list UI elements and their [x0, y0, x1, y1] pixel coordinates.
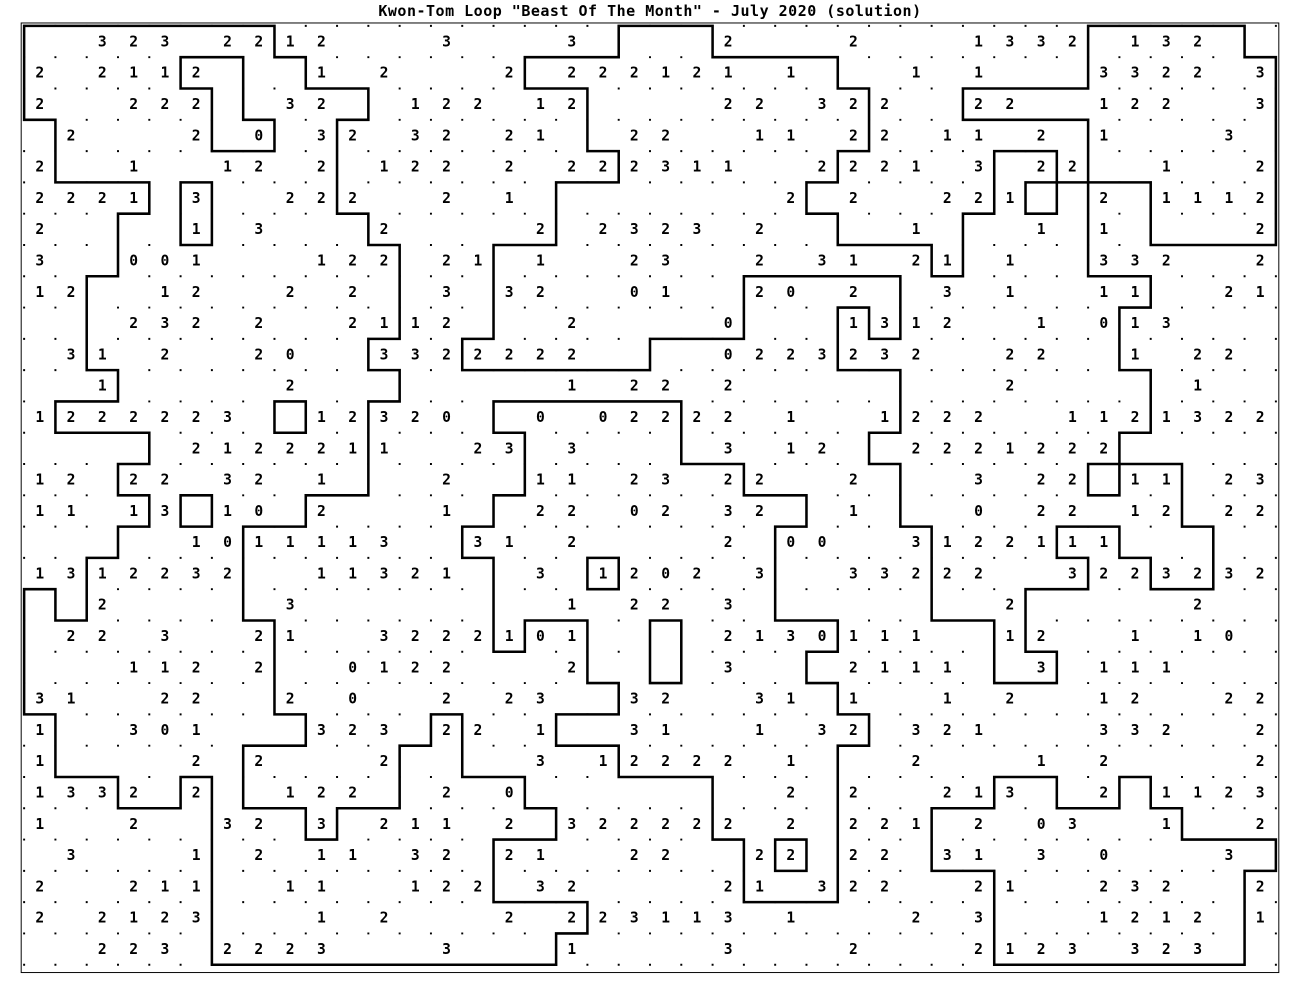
clue-cell-r9-c11: 1	[380, 315, 389, 332]
clue-cell-r28-c4: 2	[161, 910, 170, 927]
clue-cell-r1-c19: 2	[630, 65, 639, 82]
clue-cell-r12-c21: 2	[693, 409, 702, 426]
clue-cell-r9-c26: 1	[849, 315, 858, 332]
clue-cell-r23-c7: 2	[254, 753, 263, 770]
clue-cell-r27-c8: 1	[286, 878, 295, 895]
clue-cell-r10-c1: 3	[67, 346, 76, 363]
clue-cell-r6-c28: 1	[912, 221, 921, 238]
clue-cell-r28-c35: 2	[1131, 910, 1140, 927]
clue-cell-r16-c6: 0	[223, 534, 232, 551]
clue-cell-r5-c37: 1	[1193, 190, 1202, 207]
clue-cell-r16-c34: 1	[1099, 534, 1108, 551]
clue-cell-r10-c13: 2	[442, 346, 451, 363]
clue-cell-r3-c23: 1	[755, 127, 764, 144]
clue-cell-r6-c34: 1	[1099, 221, 1108, 238]
clue-cell-r6-c0: 2	[35, 221, 44, 238]
clue-cell-r17-c0: 1	[35, 565, 44, 582]
clue-cell-r19-c28: 1	[912, 628, 921, 645]
clue-cell-r29-c22: 3	[724, 941, 733, 958]
clue-cell-r14-c23: 2	[755, 472, 764, 489]
clue-cell-r19-c32: 2	[1037, 628, 1046, 645]
clue-cell-r26-c29: 3	[943, 847, 952, 864]
clue-cell-r17-c34: 2	[1099, 565, 1108, 582]
clue-cell-r6-c23: 2	[755, 221, 764, 238]
clue-cell-r4-c17: 2	[567, 159, 576, 176]
clue-cell-r5-c3: 1	[129, 190, 138, 207]
clue-cell-r17-c33: 3	[1068, 565, 1077, 582]
clue-cell-r28-c39: 1	[1256, 910, 1265, 927]
clue-cell-r13-c34: 2	[1099, 440, 1108, 457]
clue-cell-r0-c4: 3	[161, 33, 170, 50]
clue-cell-r2-c36: 2	[1162, 96, 1171, 113]
clue-cell-r10-c8: 0	[286, 346, 295, 363]
clue-cell-r24-c9: 2	[317, 785, 326, 802]
clue-cell-r13-c30: 2	[974, 440, 983, 457]
clue-cell-r0-c8: 1	[286, 33, 295, 50]
clue-cell-r20-c10: 0	[348, 659, 357, 676]
clue-cell-r22-c28: 3	[912, 722, 921, 739]
clue-cell-r5-c15: 1	[505, 190, 514, 207]
clue-cell-r4-c30: 3	[974, 159, 983, 176]
clue-cell-r28-c18: 2	[599, 910, 608, 927]
clue-cell-r17-c6: 2	[223, 565, 232, 582]
clue-cell-r19-c31: 1	[1005, 628, 1014, 645]
clue-cell-r10-c31: 2	[1005, 346, 1014, 363]
clue-cell-r17-c10: 1	[348, 565, 357, 582]
clue-cell-r23-c24: 1	[786, 753, 795, 770]
clue-cell-r4-c12: 2	[411, 159, 420, 176]
clue-cell-r25-c11: 2	[380, 816, 389, 833]
clue-cell-r25-c22: 2	[724, 816, 733, 833]
clue-cell-r13-c28: 2	[912, 440, 921, 457]
clue-cell-r1-c30: 1	[974, 65, 983, 82]
clue-cell-r17-c11: 3	[380, 565, 389, 582]
clue-cell-r9-c13: 2	[442, 315, 451, 332]
clue-cell-r7-c26: 1	[849, 253, 858, 270]
clue-cell-r25-c3: 2	[129, 816, 138, 833]
clue-cell-r11-c20: 2	[661, 378, 670, 395]
clue-cell-r29-c8: 2	[286, 941, 295, 958]
clue-cell-r12-c13: 0	[442, 409, 451, 426]
clue-cell-r19-c22: 2	[724, 628, 733, 645]
clue-cell-r0-c35: 1	[1131, 33, 1140, 50]
clue-cell-r14-c1: 2	[67, 472, 76, 489]
clue-cell-r13-c14: 2	[473, 440, 482, 457]
clue-cell-r2-c3: 2	[129, 96, 138, 113]
clue-cell-r12-c1: 2	[67, 409, 76, 426]
clue-cell-r26-c12: 3	[411, 847, 420, 864]
clue-cell-r22-c9: 3	[317, 722, 326, 739]
clue-cell-r19-c8: 1	[286, 628, 295, 645]
clue-cell-r27-c13: 2	[442, 878, 451, 895]
clue-cell-r26-c10: 1	[348, 847, 357, 864]
clue-cell-r22-c19: 3	[630, 722, 639, 739]
clue-cell-r15-c26: 1	[849, 503, 858, 520]
clue-cell-r3-c10: 2	[348, 127, 357, 144]
clue-cell-r29-c37: 3	[1193, 941, 1202, 958]
clue-cell-r12-c34: 1	[1099, 409, 1108, 426]
clue-cell-r4-c25: 2	[818, 159, 827, 176]
clue-cell-r23-c0: 1	[35, 753, 44, 770]
clue-cell-r22-c11: 3	[380, 722, 389, 739]
clue-cell-r12-c29: 2	[943, 409, 952, 426]
clue-cell-r10-c14: 2	[473, 346, 482, 363]
clue-cell-r29-c13: 3	[442, 941, 451, 958]
clue-cell-r24-c10: 2	[348, 785, 357, 802]
clue-cell-r2-c13: 2	[442, 96, 451, 113]
clue-cell-r17-c26: 3	[849, 565, 858, 582]
clue-cell-r6-c20: 2	[661, 221, 670, 238]
clue-cell-r17-c21: 2	[693, 565, 702, 582]
clue-cell-r26-c34: 0	[1099, 847, 1108, 864]
clue-cell-r4-c28: 1	[912, 159, 921, 176]
clue-cell-r5-c5: 3	[192, 190, 201, 207]
clue-cell-r8-c0: 1	[35, 284, 44, 301]
clue-cell-r24-c37: 1	[1193, 785, 1202, 802]
clue-cell-r17-c1: 3	[67, 565, 76, 582]
clue-cell-r6-c21: 3	[693, 221, 702, 238]
clue-cell-r26-c38: 3	[1225, 847, 1234, 864]
clue-cell-r7-c5: 1	[192, 253, 201, 270]
clue-cell-r3-c16: 1	[536, 127, 545, 144]
clue-cell-r12-c30: 2	[974, 409, 983, 426]
clue-cell-r21-c1: 1	[67, 691, 76, 708]
clue-cell-r16-c30: 2	[974, 534, 983, 551]
clue-cell-r19-c11: 3	[380, 628, 389, 645]
clue-cell-r10-c2: 1	[98, 346, 107, 363]
clue-cell-r29-c30: 2	[974, 941, 983, 958]
clue-cell-r27-c22: 2	[724, 878, 733, 895]
clue-cell-r6-c19: 3	[630, 221, 639, 238]
clue-cell-r9-c5: 2	[192, 315, 201, 332]
clue-cell-r15-c9: 2	[317, 503, 326, 520]
clue-cell-r25-c30: 2	[974, 816, 983, 833]
clue-cell-r20-c5: 2	[192, 659, 201, 676]
clue-cell-r7-c19: 2	[630, 253, 639, 270]
clue-cell-r21-c23: 3	[755, 691, 764, 708]
clue-cell-r9-c7: 2	[254, 315, 263, 332]
clue-cell-r3-c7: 0	[254, 127, 263, 144]
clue-cell-r13-c17: 3	[567, 440, 576, 457]
clue-cell-r4-c32: 2	[1037, 159, 1046, 176]
clue-cell-r1-c5: 2	[192, 65, 201, 82]
clue-cell-r0-c32: 3	[1037, 33, 1046, 50]
clue-cell-r2-c16: 1	[536, 96, 545, 113]
clue-cell-r12-c19: 2	[630, 409, 639, 426]
clue-cell-r13-c7: 2	[254, 440, 263, 457]
clue-cell-r14-c16: 1	[536, 472, 545, 489]
clue-cell-r24-c36: 1	[1162, 785, 1171, 802]
clue-cell-r3-c29: 1	[943, 127, 952, 144]
clue-cell-r20-c27: 1	[880, 659, 889, 676]
clue-cell-r17-c4: 2	[161, 565, 170, 582]
clue-cell-r10-c11: 3	[380, 346, 389, 363]
clue-cell-r16-c28: 3	[912, 534, 921, 551]
clue-cell-r0-c3: 2	[129, 33, 138, 50]
clue-cell-r28-c9: 1	[317, 910, 326, 927]
clue-cell-r15-c16: 2	[536, 503, 545, 520]
clue-cell-r4-c36: 1	[1162, 159, 1171, 176]
clue-cell-r15-c1: 1	[67, 503, 76, 520]
clue-cell-r14-c7: 2	[254, 472, 263, 489]
clue-cell-r14-c26: 2	[849, 472, 858, 489]
clue-cell-r17-c12: 2	[411, 565, 420, 582]
board-area: 3232212332213321322211212222212111133223…	[0, 22, 1300, 997]
clue-cell-r19-c27: 1	[880, 628, 889, 645]
clue-cell-r7-c10: 2	[348, 253, 357, 270]
clue-cell-r1-c22: 1	[724, 65, 733, 82]
clue-cell-r8-c5: 2	[192, 284, 201, 301]
clue-cell-r27-c36: 2	[1162, 878, 1171, 895]
clue-cell-r20-c22: 3	[724, 659, 733, 676]
clue-cell-r3-c26: 2	[849, 127, 858, 144]
clue-cell-r0-c13: 3	[442, 33, 451, 50]
clue-cell-r9-c17: 2	[567, 315, 576, 332]
clue-cell-r12-c24: 1	[786, 409, 795, 426]
clue-cell-r15-c6: 1	[223, 503, 232, 520]
clue-cell-r23-c21: 2	[693, 753, 702, 770]
clue-cell-r26-c5: 1	[192, 847, 201, 864]
clue-cell-r0-c2: 3	[98, 33, 107, 50]
clue-cell-r2-c39: 3	[1256, 96, 1265, 113]
clue-cell-r21-c20: 2	[661, 691, 670, 708]
clue-cell-r19-c4: 3	[161, 628, 170, 645]
clue-cell-r3-c12: 3	[411, 127, 420, 144]
clue-cell-r28-c19: 3	[630, 910, 639, 927]
clue-cell-r8-c19: 0	[630, 284, 639, 301]
clue-cell-r13-c11: 1	[380, 440, 389, 457]
clue-cell-r7-c9: 1	[317, 253, 326, 270]
clue-cell-r5-c1: 2	[67, 190, 76, 207]
clue-cell-r12-c22: 2	[724, 409, 733, 426]
clue-cell-r12-c18: 0	[599, 409, 608, 426]
clue-cell-r5-c10: 2	[348, 190, 357, 207]
clue-cell-r5-c13: 2	[442, 190, 451, 207]
clue-cell-r13-c25: 2	[818, 440, 827, 457]
clue-cell-r0-c31: 3	[1005, 33, 1014, 50]
clue-cell-r7-c11: 2	[380, 253, 389, 270]
clue-cell-r26-c32: 3	[1037, 847, 1046, 864]
clue-cell-r24-c29: 2	[943, 785, 952, 802]
clue-cell-r10-c17: 2	[567, 346, 576, 363]
clue-cell-r16-c32: 1	[1037, 534, 1046, 551]
clue-cell-r9-c32: 1	[1037, 315, 1046, 332]
clue-cell-r24-c38: 2	[1225, 785, 1234, 802]
clue-cell-r1-c15: 2	[505, 65, 514, 82]
clue-cell-r5-c31: 1	[1005, 190, 1014, 207]
clue-cell-r25-c18: 2	[599, 816, 608, 833]
clue-cell-r15-c13: 1	[442, 503, 451, 520]
clue-cell-r17-c19: 2	[630, 565, 639, 582]
clue-cell-r6-c11: 2	[380, 221, 389, 238]
clue-cell-r8-c35: 1	[1131, 284, 1140, 301]
clue-cell-r6-c7: 3	[254, 221, 263, 238]
clue-cell-r7-c35: 3	[1131, 253, 1140, 270]
clue-cell-r24-c8: 1	[286, 785, 295, 802]
clue-cell-r27-c14: 2	[473, 878, 482, 895]
clue-cell-r7-c39: 2	[1256, 253, 1265, 270]
clue-cell-r6-c18: 2	[599, 221, 608, 238]
clue-cell-r18-c37: 2	[1193, 597, 1202, 614]
clue-cell-r28-c17: 2	[567, 910, 576, 927]
clue-cell-r14-c13: 2	[442, 472, 451, 489]
clue-cell-r5-c24: 2	[786, 190, 795, 207]
clue-cell-r28-c28: 2	[912, 910, 921, 927]
clue-cell-r12-c37: 3	[1193, 409, 1202, 426]
clue-cell-r1-c17: 2	[567, 65, 576, 82]
clue-cell-r19-c25: 0	[818, 628, 827, 645]
clue-cell-r29-c32: 2	[1037, 941, 1046, 958]
clue-cell-r21-c29: 1	[943, 691, 952, 708]
clue-cell-r3-c15: 2	[505, 127, 514, 144]
title-bar: Kwon-Tom Loop "Beast Of The Month" - Jul…	[0, 0, 1300, 22]
clue-cell-r24-c15: 0	[505, 785, 514, 802]
clue-cell-r26-c26: 2	[849, 847, 858, 864]
clue-cell-r11-c8: 2	[286, 378, 295, 395]
clue-cell-r6-c32: 1	[1037, 221, 1046, 238]
clue-cell-r25-c7: 2	[254, 816, 263, 833]
clue-cell-r17-c30: 2	[974, 565, 983, 582]
clue-cell-r21-c19: 3	[630, 691, 639, 708]
clue-cell-r8-c10: 2	[348, 284, 357, 301]
clue-cell-r6-c39: 2	[1256, 221, 1265, 238]
clue-cell-r4-c18: 2	[599, 159, 608, 176]
clue-cell-r9-c22: 0	[724, 315, 733, 332]
clue-cell-r19-c38: 0	[1225, 628, 1234, 645]
clue-cell-r17-c37: 2	[1193, 565, 1202, 582]
clue-cell-r13-c10: 1	[348, 440, 357, 457]
clue-cell-r21-c38: 2	[1225, 691, 1234, 708]
clue-cell-r16-c22: 2	[724, 534, 733, 551]
clue-cell-r17-c35: 2	[1131, 565, 1140, 582]
clue-cell-r10-c25: 3	[818, 346, 827, 363]
clue-cell-r25-c39: 2	[1256, 816, 1265, 833]
clue-cell-r29-c7: 2	[254, 941, 263, 958]
clue-cell-r7-c36: 2	[1162, 253, 1171, 270]
clue-cell-r7-c28: 2	[912, 253, 921, 270]
clue-cell-r28-c11: 2	[380, 910, 389, 927]
clue-cell-r0-c26: 2	[849, 33, 858, 50]
clue-cell-r14-c35: 1	[1131, 472, 1140, 489]
clue-cell-r16-c24: 0	[786, 534, 795, 551]
clue-cell-r10-c26: 2	[849, 346, 858, 363]
clue-cell-r19-c16: 0	[536, 628, 545, 645]
clue-cell-r10-c24: 2	[786, 346, 795, 363]
clue-cell-r8-c1: 2	[67, 284, 76, 301]
clue-cell-r25-c6: 3	[223, 816, 232, 833]
clue-cell-r14-c20: 3	[661, 472, 670, 489]
clue-cell-r14-c38: 2	[1225, 472, 1234, 489]
clue-cell-r10-c22: 0	[724, 346, 733, 363]
clue-cell-r18-c20: 2	[661, 597, 670, 614]
clue-cell-r16-c14: 3	[473, 534, 482, 551]
clue-cell-r7-c13: 2	[442, 253, 451, 270]
clue-cell-r4-c19: 2	[630, 159, 639, 176]
clue-cell-r18-c2: 2	[98, 597, 107, 614]
clue-cell-r16-c7: 1	[254, 534, 263, 551]
clue-cell-r11-c22: 2	[724, 378, 733, 395]
clue-cell-r25-c19: 2	[630, 816, 639, 833]
clue-cell-r23-c19: 2	[630, 753, 639, 770]
clue-cell-r19-c13: 2	[442, 628, 451, 645]
clue-cell-r22-c3: 3	[129, 722, 138, 739]
clue-cell-r10-c4: 2	[161, 346, 170, 363]
clue-cell-r15-c0: 1	[35, 503, 44, 520]
clue-cell-r25-c0: 1	[35, 816, 44, 833]
clue-cell-r29-c36: 2	[1162, 941, 1171, 958]
clue-cell-r17-c36: 3	[1162, 565, 1171, 582]
clue-cell-r1-c20: 1	[661, 65, 670, 82]
clue-cell-r16-c33: 1	[1068, 534, 1077, 551]
clue-cell-r12-c38: 2	[1225, 409, 1234, 426]
clue-cell-r17-c29: 2	[943, 565, 952, 582]
clue-cell-r15-c20: 2	[661, 503, 670, 520]
clue-cell-r2-c30: 2	[974, 96, 983, 113]
clue-cell-r7-c31: 1	[1005, 253, 1014, 270]
clue-cell-r5-c29: 2	[943, 190, 952, 207]
clue-cell-r4-c26: 2	[849, 159, 858, 176]
clue-cell-r2-c17: 2	[567, 96, 576, 113]
clue-cell-r15-c39: 2	[1256, 503, 1265, 520]
clue-cell-r1-c37: 2	[1193, 65, 1202, 82]
clue-cell-r25-c27: 2	[880, 816, 889, 833]
clue-cell-r2-c27: 2	[880, 96, 889, 113]
clue-cell-r8-c29: 3	[943, 284, 952, 301]
clue-cell-r28-c30: 3	[974, 910, 983, 927]
clue-cell-r22-c13: 2	[442, 722, 451, 739]
clue-cell-r7-c4: 0	[161, 253, 170, 270]
clue-cell-r28-c3: 1	[129, 910, 138, 927]
clue-cell-r20-c4: 1	[161, 659, 170, 676]
clue-cell-r1-c21: 2	[693, 65, 702, 82]
clue-cell-r2-c23: 2	[755, 96, 764, 113]
clue-cell-r15-c32: 2	[1037, 503, 1046, 520]
clue-cell-r25-c17: 3	[567, 816, 576, 833]
clue-cell-r3-c1: 2	[67, 127, 76, 144]
clue-cell-r8-c20: 1	[661, 284, 670, 301]
clue-cell-r4-c21: 1	[693, 159, 702, 176]
clue-cell-r15-c30: 0	[974, 503, 983, 520]
clue-cell-r13-c33: 2	[1068, 440, 1077, 457]
clue-cell-r3-c32: 2	[1037, 127, 1046, 144]
clue-cell-r2-c26: 2	[849, 96, 858, 113]
clue-cell-r25-c21: 2	[693, 816, 702, 833]
clue-cell-r2-c22: 2	[724, 96, 733, 113]
clue-cell-r9-c4: 3	[161, 315, 170, 332]
clue-cell-r12-c39: 2	[1256, 409, 1265, 426]
clue-cell-r10-c28: 2	[912, 346, 921, 363]
clue-cell-r8-c13: 3	[442, 284, 451, 301]
clue-cell-r2-c5: 2	[192, 96, 201, 113]
clue-cell-r12-c20: 2	[661, 409, 670, 426]
clue-cell-r28-c20: 1	[661, 910, 670, 927]
clue-cell-r7-c25: 3	[818, 253, 827, 270]
clue-cell-r2-c14: 2	[473, 96, 482, 113]
clue-cell-r18-c8: 3	[286, 597, 295, 614]
clue-cell-r4-c20: 3	[661, 159, 670, 176]
clue-cell-r29-c26: 2	[849, 941, 858, 958]
clue-cell-r28-c24: 1	[786, 910, 795, 927]
clue-cell-r16-c10: 1	[348, 534, 357, 551]
clue-cell-r24-c5: 2	[192, 785, 201, 802]
clue-cell-r24-c2: 3	[98, 785, 107, 802]
clue-cell-r29-c9: 3	[317, 941, 326, 958]
clue-cell-r19-c17: 1	[567, 628, 576, 645]
clue-cell-r23-c20: 2	[661, 753, 670, 770]
clue-cell-r19-c2: 2	[98, 628, 107, 645]
clue-cell-r14-c19: 2	[630, 472, 639, 489]
clue-cell-r18-c19: 2	[630, 597, 639, 614]
